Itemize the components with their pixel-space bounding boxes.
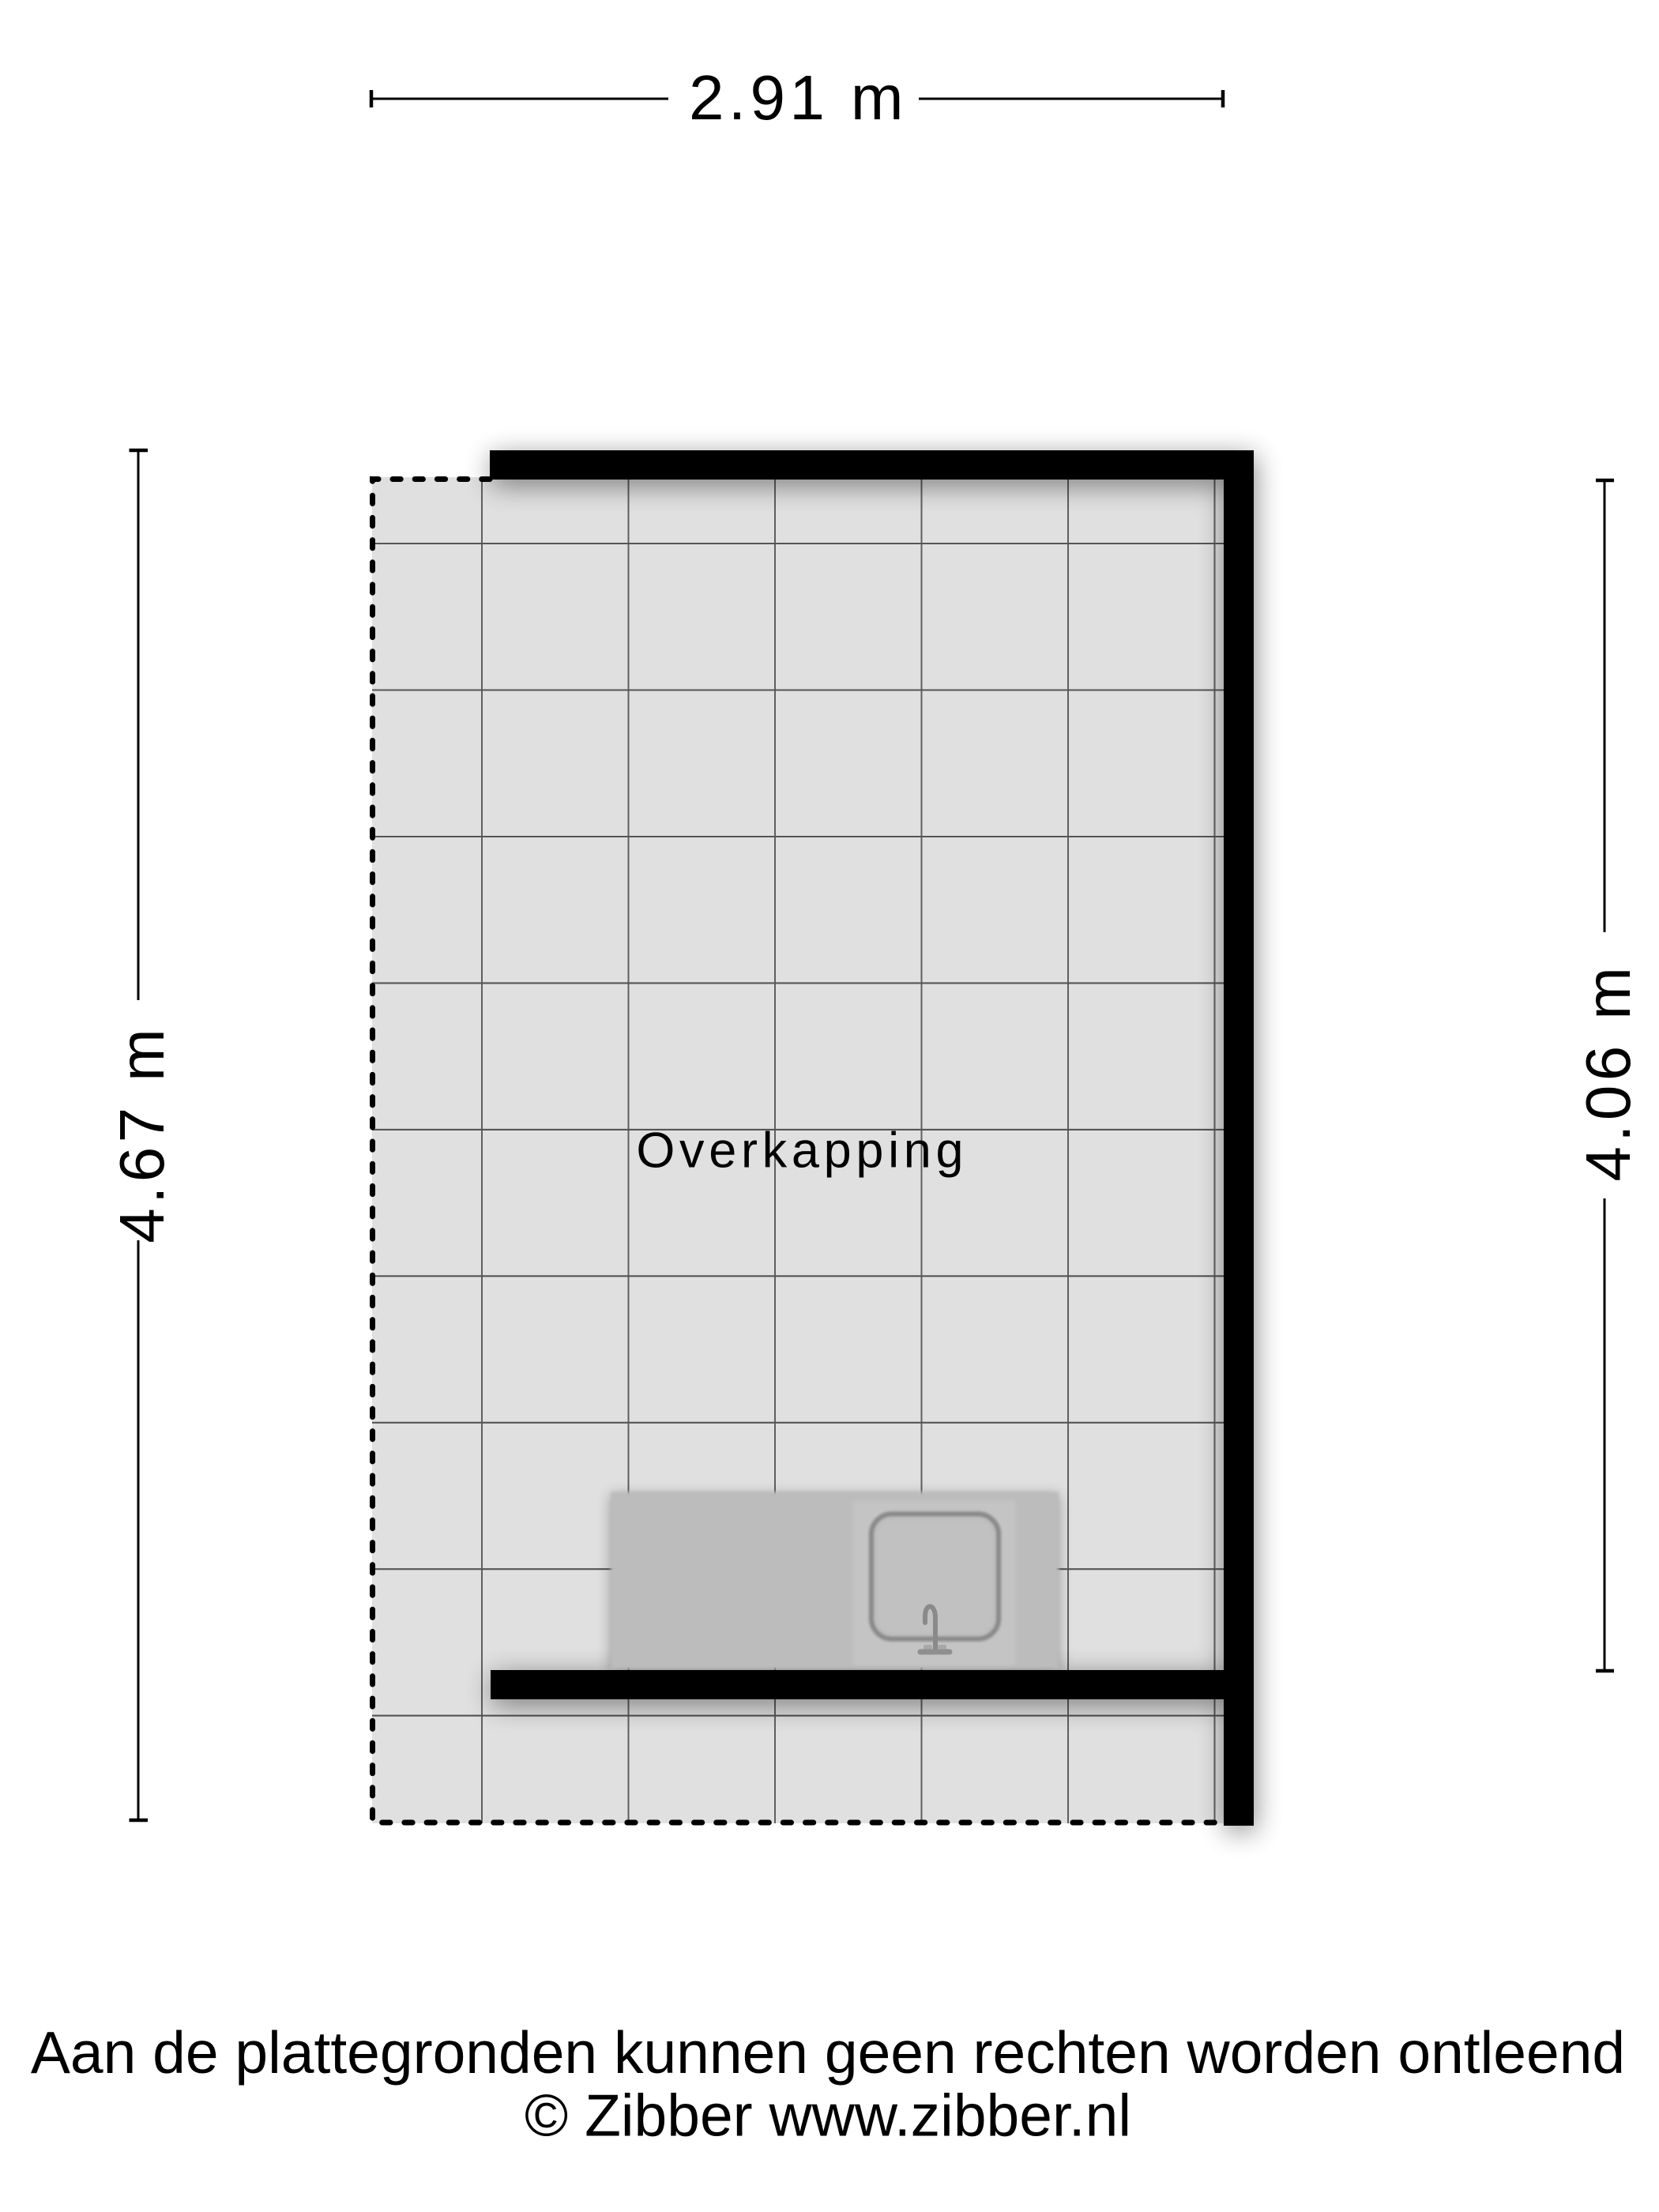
svg-text:Overkapping: Overkapping bbox=[636, 1123, 968, 1179]
svg-text:4.67 m: 4.67 m bbox=[107, 1025, 177, 1243]
svg-text:© Zibber www.zibber.nl: © Zibber www.zibber.nl bbox=[525, 2082, 1131, 2149]
svg-text:Aan de plattegronden kunnen ge: Aan de plattegronden kunnen geen rechten… bbox=[31, 2019, 1625, 2086]
svg-text:2.91 m: 2.91 m bbox=[689, 62, 908, 133]
svg-text:4.06 m: 4.06 m bbox=[1573, 963, 1643, 1182]
